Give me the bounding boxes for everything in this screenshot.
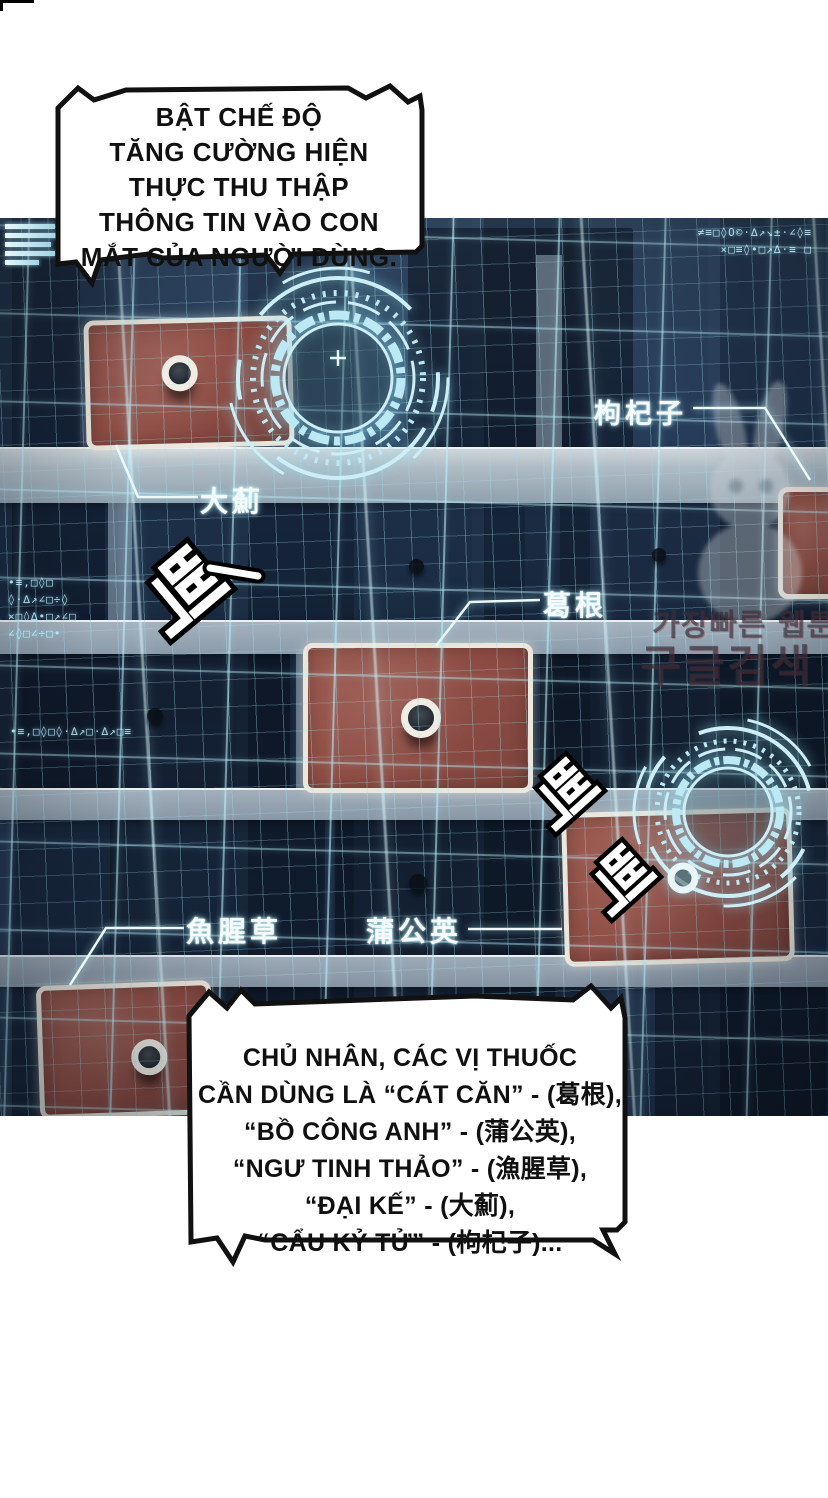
herb-label-cat-can: 葛根	[543, 584, 607, 624]
herb-label-bo-cong-anh: 蒲公英	[366, 910, 462, 950]
speech-bubble-top-text: BẬT CHẾ ĐỘ TĂNG CƯỜNG HIỆN THỰC THU THẬP…	[58, 100, 420, 275]
herb-label-cau-ky-tu: 枸杞子	[594, 392, 687, 431]
glitch-text-top-right: ≠≡□◊O©·∆↗↘±·∠◊≡ ×□≡◊•□↗∆·≡ □	[698, 224, 812, 258]
page-corner-mark	[0, 0, 3, 11]
page-corner-mark	[0, 0, 34, 3]
svg-text:삑: 삑	[568, 833, 666, 930]
watermark-line2: 구글검색	[640, 630, 814, 694]
glitch-text-mid-left: •≡,□◊□ ◊·∆↗∠□÷◊ ×□◊∆•□↗∠□ ∠◊□∠÷□•	[8, 574, 77, 642]
sfx-beep: 삑	[552, 820, 682, 950]
comic-page: 大薊 枸杞子 葛根 魚腥草 蒲公英 ≠≡□◊O©·∆↗↘±·∠◊≡ ×□≡◊•□…	[0, 0, 828, 1498]
speech-bubble-bottom-text: CHỦ NHÂN, CÁC VỊ THUỐC CẦN DÙNG LÀ “CÁT …	[193, 1040, 627, 1262]
sfx-beep: 삑	[95, 518, 275, 668]
herb-label-dai-ji: 大薊	[200, 480, 264, 520]
glitch-text-low-left: •≡,□◊□◊·∆↗□·∆↗□≡	[10, 723, 132, 740]
svg-text:삑: 삑	[117, 531, 242, 653]
herb-label-ngu-tinh-thao: 魚腥草	[186, 910, 282, 950]
